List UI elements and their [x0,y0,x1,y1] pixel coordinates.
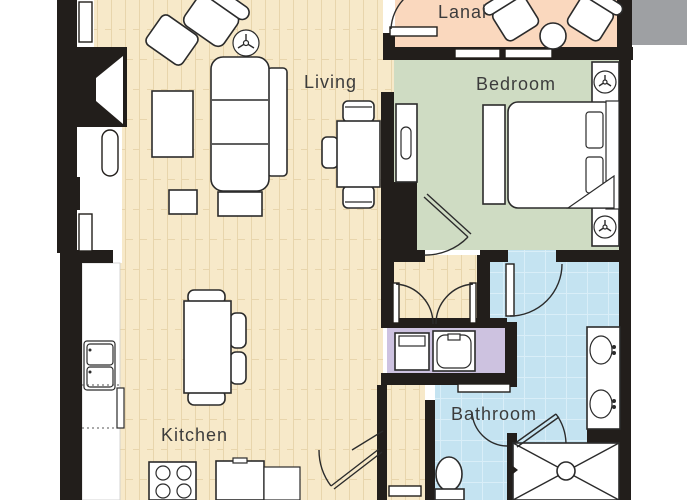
window-icon [79,214,92,251]
closet-hall-floor [390,255,477,322]
wall-laundry-top [381,318,507,328]
wall-closet-top [381,250,425,262]
window-icon [79,2,92,42]
nightstand-icon [592,207,619,246]
lanai-table-icon [540,23,566,49]
stove-icon [149,462,196,500]
sofa-icon [211,57,287,191]
label-living: Living [304,72,357,92]
washer-icon [433,331,475,371]
floor-plan: Lanai Living Bedroom Kitchen Bathroom [0,0,700,500]
label-bathroom: Bathroom [451,404,537,424]
wall-laundry-bottom [381,373,507,385]
side-table-icon [169,190,197,214]
wall-kitchen-left [60,253,82,500]
chair-icon [230,313,246,348]
counter-segment [264,467,300,500]
ceiling-fan-icon [233,30,259,56]
refrigerator-icon [216,458,264,500]
side-table-icon [218,192,262,216]
vestibule-floor [387,385,425,500]
bed-bench [483,105,505,204]
wall-left-stub [70,177,80,210]
label-bedroom: Bedroom [476,74,556,94]
window-icon [102,130,118,176]
label-kitchen: Kitchen [161,425,228,445]
window-icon [455,49,500,58]
pocket-door [458,384,510,392]
label-lanai: Lanai [438,2,487,22]
shower-icon [509,443,619,500]
chair-icon [230,352,246,384]
bathroom-doorway-floor [508,250,556,262]
pillow [586,112,603,148]
window-icon [505,49,552,58]
chair-icon [343,186,374,208]
vanity-sink-icon [587,327,620,429]
wall-hall-bath [477,255,490,325]
wall-vanity-end [587,428,619,443]
wall-left-top [57,0,77,47]
bed-icon [483,101,619,209]
entry-threshold [389,486,421,496]
chair-icon [343,101,374,122]
laundry-appliances [395,331,475,371]
wall-bedroom-corner [381,182,417,250]
dresser-icon [396,104,417,182]
counter-panel [117,388,124,428]
wall-left-mid1 [57,127,77,180]
toilet-icon [435,457,464,500]
dryer-icon [395,333,429,370]
kitchen-sink-icon [84,341,115,390]
wall-bedroom-right [619,58,631,260]
wall-vestibule-left [377,385,387,500]
wall-vestibule-right [425,400,435,500]
chair-icon [322,137,338,168]
nightstand-icon [592,62,619,103]
adjacent-unit-bar [632,0,687,45]
wall-kitchen-corner [70,250,113,263]
wall-lanai-left [383,33,395,60]
coffee-table-icon [152,91,193,157]
